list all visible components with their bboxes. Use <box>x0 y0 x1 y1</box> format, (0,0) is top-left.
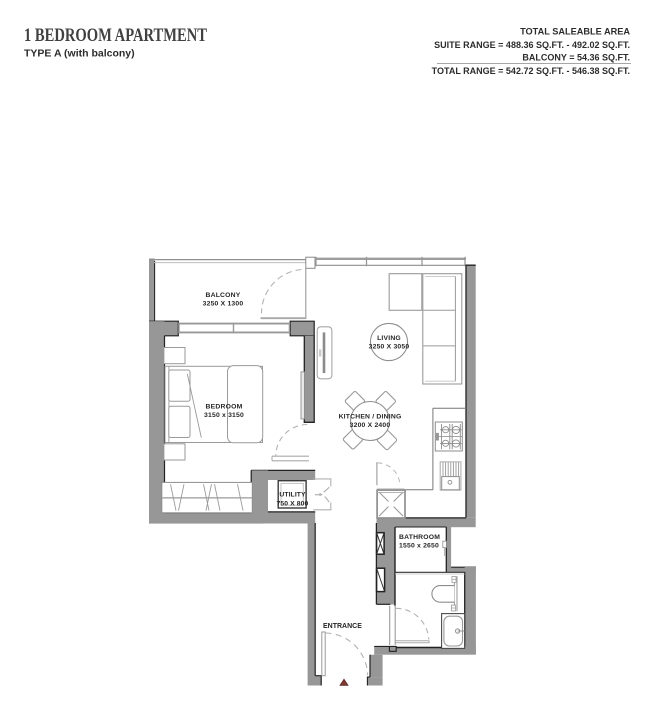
svg-text:TYPE A (with balcony): TYPE A (with balcony) <box>24 48 135 60</box>
svg-text:ENTRANCE: ENTRANCE <box>323 623 362 630</box>
svg-text:LIVING: LIVING <box>377 335 401 342</box>
svg-text:750 X 800: 750 X 800 <box>277 501 309 508</box>
svg-text:KITCHEN / DINING: KITCHEN / DINING <box>339 414 402 421</box>
svg-text:UTILITY: UTILITY <box>279 492 306 499</box>
svg-text:BALCONY = 54.36 SQ.FT.: BALCONY = 54.36 SQ.FT. <box>522 53 630 63</box>
svg-text:BEDROOM: BEDROOM <box>206 404 243 411</box>
svg-text:BALCONY: BALCONY <box>205 292 240 299</box>
svg-text:1 BEDROOM APARTMENT: 1 BEDROOM APARTMENT <box>24 25 207 46</box>
svg-text:TOTAL SALEABLE AREA: TOTAL SALEABLE AREA <box>520 27 630 37</box>
svg-text:SUITE RANGE = 488.36 SQ.FT. -: SUITE RANGE = 488.36 SQ.FT. - 492.02 SQ.… <box>434 40 630 50</box>
svg-text:TOTAL RANGE = 542.72 SQ.FT. -: TOTAL RANGE = 542.72 SQ.FT. - 546.38 SQ.… <box>432 66 630 76</box>
svg-text:3200 X 2400: 3200 X 2400 <box>350 422 391 429</box>
svg-text:BATHROOM: BATHROOM <box>399 534 440 541</box>
svg-text:3250 X 1300: 3250 X 1300 <box>203 301 244 308</box>
svg-text:1550 x 2650: 1550 x 2650 <box>399 543 439 550</box>
svg-text:3250 X 3050: 3250 X 3050 <box>369 344 410 351</box>
svg-text:3150 x 3150: 3150 x 3150 <box>204 412 244 419</box>
